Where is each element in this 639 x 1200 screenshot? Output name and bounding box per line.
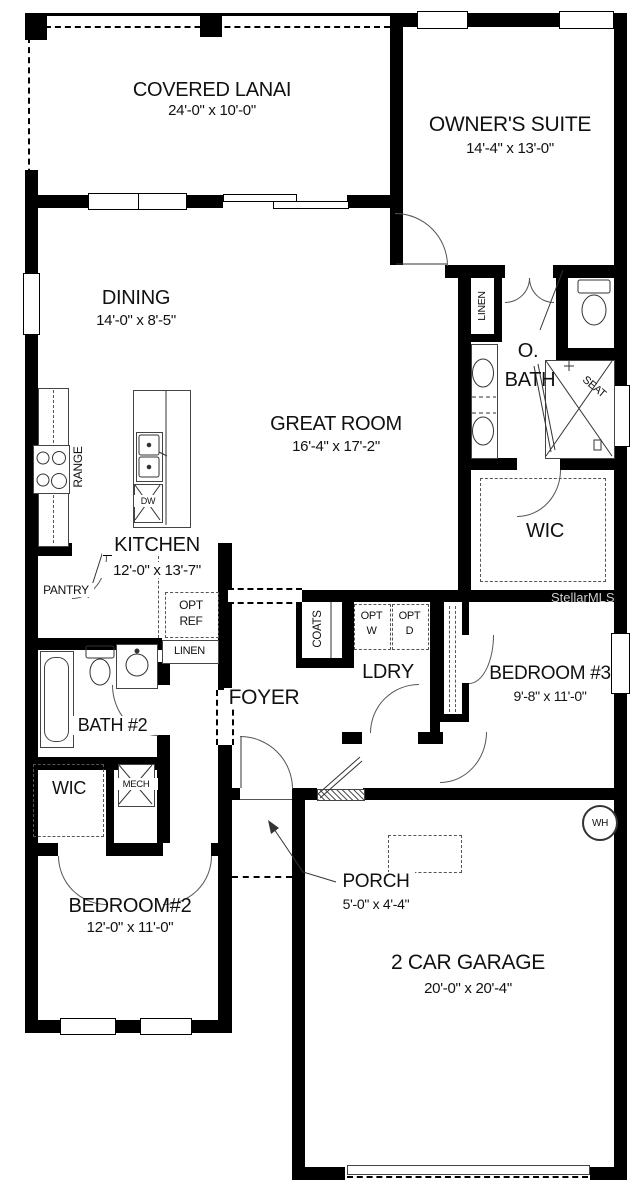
kitchen-label: KITCHEN bbox=[102, 535, 212, 555]
bathtub-inner bbox=[44, 657, 69, 742]
dining-dims: 14'-0" x 8'-5" bbox=[80, 312, 192, 328]
opt-pad-box bbox=[388, 835, 462, 873]
vanity-owners-bath bbox=[471, 344, 498, 459]
porch-label: PORCH bbox=[337, 872, 415, 891]
wall-garage-left bbox=[292, 788, 305, 1180]
wall-b3-closet-right bbox=[462, 602, 469, 635]
porch-dims: 5'-0" x 4'-4" bbox=[333, 896, 419, 911]
dining-label: DINING bbox=[96, 288, 176, 308]
wall-foyer-left bbox=[218, 543, 232, 690]
watermark: StellarMLS bbox=[551, 590, 615, 605]
mech-label: MECH bbox=[114, 778, 158, 790]
water-heater: WH bbox=[582, 805, 618, 841]
linen-bath-label: LINEN bbox=[475, 276, 489, 336]
coats-label: COATS bbox=[311, 599, 325, 659]
garage-dims: 20'-0" x 20'-4" bbox=[402, 980, 534, 996]
great-room-dims: 16'-4" x 17'-2" bbox=[280, 438, 392, 454]
wall-left-exterior bbox=[25, 195, 38, 275]
wall-lanai-bottom bbox=[347, 195, 390, 208]
door-arc-bath-right-leaf[interactable] bbox=[529, 278, 554, 303]
opt-w-line1: OPT bbox=[354, 609, 389, 622]
wall-bedroom2-top bbox=[25, 843, 58, 856]
wall-wic-top bbox=[458, 458, 517, 470]
wall-coats-right bbox=[342, 602, 354, 658]
range-label: RANGE bbox=[71, 437, 85, 497]
wall-lanai-bottom bbox=[185, 195, 223, 208]
window-owners-suite bbox=[559, 11, 614, 29]
window-owners-suite bbox=[417, 11, 468, 29]
porch-edge-dashed bbox=[232, 876, 292, 880]
garage-overhead-door[interactable] bbox=[347, 1165, 590, 1175]
wall-front bbox=[232, 788, 240, 800]
opt-d-line1: OPT bbox=[392, 609, 427, 622]
bedroom2-label: BEDROOM#2 bbox=[60, 896, 200, 917]
wic2-label: WIC bbox=[41, 779, 97, 798]
toilet2-bowl bbox=[90, 659, 110, 685]
bath2-label: BATH #2 bbox=[70, 716, 155, 735]
wall-wic2-mech-divider bbox=[106, 770, 114, 843]
wall-bedroom2-bottom bbox=[25, 1020, 62, 1033]
wall-toilet-room-bottom bbox=[556, 348, 627, 360]
owners-wic-label: WIC bbox=[505, 521, 585, 541]
entry-arrow-head bbox=[268, 820, 279, 834]
foyer-label: FOYER bbox=[224, 688, 304, 708]
window-dining-rear bbox=[88, 193, 187, 210]
sliding-glass-door[interactable] bbox=[273, 201, 349, 209]
b3-closet-rod bbox=[449, 606, 451, 712]
wall-coats-bottom bbox=[296, 658, 354, 668]
owners-suite-label: OWNER'S SUITE bbox=[425, 114, 595, 135]
door-arc-front-entry[interactable] bbox=[240, 736, 293, 789]
wall-coats-left bbox=[296, 602, 302, 658]
wic2-shelving bbox=[33, 764, 104, 837]
great-room-label: GREAT ROOM bbox=[270, 414, 402, 434]
wall-wic-top bbox=[560, 458, 614, 470]
owners-bath-label-line1: O. bbox=[508, 342, 548, 360]
wall-bedroom2-top bbox=[106, 843, 163, 856]
wall-toilet-room bbox=[556, 265, 568, 348]
window-bedroom2 bbox=[60, 1018, 116, 1035]
wall-b3-closet-right bbox=[462, 683, 469, 714]
wall-b3-closet-left bbox=[437, 602, 444, 714]
bedroom3-dims: 9'-8" x 11'-0" bbox=[493, 688, 607, 704]
opt-w-line2: W bbox=[354, 624, 389, 637]
dishwasher-label: DW bbox=[134, 495, 162, 507]
b3-closet-rod bbox=[455, 606, 457, 712]
toilet-bowl bbox=[582, 295, 606, 325]
wall-laundry-bottom bbox=[342, 732, 362, 744]
island-sink bbox=[136, 432, 163, 482]
door-arc-owners-suite[interactable] bbox=[395, 213, 448, 266]
window-dining-left bbox=[23, 273, 40, 335]
vanity-bath2 bbox=[116, 644, 158, 689]
laundry-label: LDRY bbox=[353, 662, 423, 682]
cased-opening-foyer bbox=[228, 588, 302, 604]
lanai-post bbox=[200, 13, 222, 37]
wall-bedroom2-top bbox=[211, 843, 232, 856]
wall-front bbox=[363, 788, 627, 800]
wall-garage-bottom bbox=[590, 1167, 627, 1180]
linen-hall-label: LINEN bbox=[162, 644, 217, 658]
door-arc-laundry[interactable] bbox=[370, 684, 419, 733]
bedroom2-dims: 12'-0" x 11'-0" bbox=[68, 919, 192, 935]
bedroom3-label: BEDROOM #3 bbox=[485, 664, 615, 683]
wall-b3-closet-bottom bbox=[437, 714, 469, 722]
wall-bath-left bbox=[458, 265, 471, 602]
wall-bedroom2-bottom bbox=[112, 1020, 142, 1033]
wall-left-exterior bbox=[25, 332, 38, 1033]
garage-label: 2 CAR GARAGE bbox=[388, 952, 548, 973]
floor-plan: LINEN SEAT O. BATH WIC RANGE DW PANTRY O… bbox=[0, 0, 639, 1200]
lanai-dims: 24'-0" x 10'-0" bbox=[150, 102, 274, 118]
wall-bath2-right bbox=[157, 662, 170, 685]
garage-door-threshold bbox=[317, 789, 365, 801]
opt-d-line2: D bbox=[392, 624, 427, 637]
lanai-screen-left-dashed bbox=[28, 37, 32, 195]
lanai-label: COVERED LANAI bbox=[122, 80, 302, 100]
door-arc-bath-left-leaf[interactable] bbox=[505, 278, 530, 303]
toilet-tank bbox=[578, 280, 610, 293]
wall-linen-right bbox=[494, 278, 502, 340]
front-door-threshold bbox=[240, 788, 292, 800]
owners-bath-label-line2: BATH bbox=[500, 371, 560, 390]
owners-suite-dims: 14'-4" x 13'-0" bbox=[448, 140, 572, 156]
wall-bath2-right bbox=[157, 735, 170, 843]
water-heater-label: WH bbox=[592, 818, 608, 829]
wall-foyer-left bbox=[218, 745, 232, 1033]
wall-bedroom2-bottom bbox=[188, 1020, 232, 1033]
window-bedroom2 bbox=[140, 1018, 192, 1035]
opt-ref-line1: OPT bbox=[165, 598, 217, 612]
range-cooktop bbox=[33, 445, 70, 494]
lanai-screen-top-dashed bbox=[25, 26, 390, 30]
wall-garage-bottom bbox=[292, 1167, 345, 1180]
kitchen-dims: 12'-0" x 13'-7" bbox=[101, 562, 213, 578]
pantry-label: PANTRY bbox=[38, 583, 94, 597]
door-arc-bedroom3[interactable] bbox=[440, 732, 487, 783]
garage-door-dashed bbox=[347, 1176, 588, 1180]
opt-ref-line2: REF bbox=[165, 614, 217, 628]
